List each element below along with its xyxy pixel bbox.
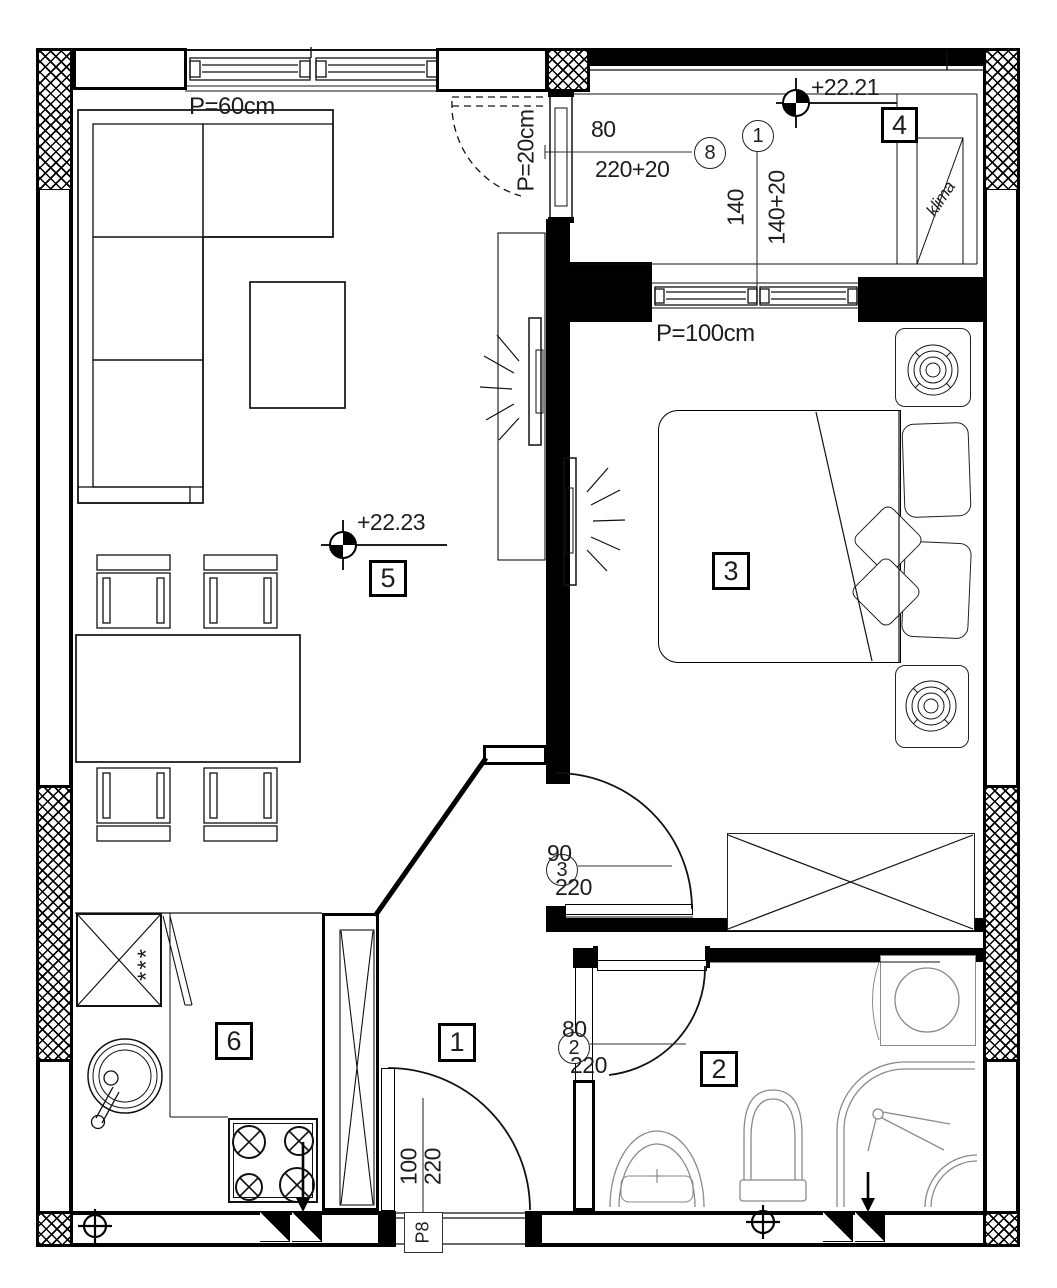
tv-cabinet <box>498 233 545 560</box>
level-label-living: +22.23 <box>357 509 425 536</box>
washer-drum <box>895 968 959 1032</box>
kitchen-sink <box>88 1039 162 1129</box>
wall-diagonal <box>375 758 486 916</box>
coffee-table <box>250 282 345 408</box>
dim-terrace-window-height: 140+20 <box>764 158 791 258</box>
window-living <box>185 47 438 91</box>
bathroom-door-arc <box>609 966 705 1075</box>
lamp <box>906 345 958 731</box>
dim-bathroom-door-width: 80 <box>562 1016 587 1043</box>
shower-head-icon <box>873 1109 883 1119</box>
floor-plan: P=60cm P=100cm P=20cm +22.21 +22.23 klim… <box>0 0 1057 1288</box>
dim-entrance-door-height: 220 <box>420 1117 447 1217</box>
dim-terrace-window-width: 140 <box>723 158 750 258</box>
entrance-panel-box: P8 <box>404 1212 443 1253</box>
room-label-bathroom: 2 <box>700 1051 738 1087</box>
room-label-terrace: 4 <box>881 107 918 143</box>
ref-balcony-door: 8 <box>694 137 726 169</box>
shower <box>837 1062 977 1207</box>
room-label-kitchen: 6 <box>215 1022 253 1060</box>
entrance-panel-label: P8 <box>413 1221 434 1243</box>
level-label-terrace: +22.21 <box>811 74 879 101</box>
sofa <box>78 110 333 503</box>
dining-table <box>76 635 300 762</box>
dim-bedroom-door-width: 90 <box>547 840 572 867</box>
chair <box>204 555 277 628</box>
toilet <box>740 1090 806 1201</box>
window-label-bedroom: P=100cm <box>656 320 755 348</box>
dim-entrance-door-width: 100 <box>396 1117 423 1217</box>
window-label-balcony: P=20cm <box>513 101 540 201</box>
dim-balcony-door-width: 80 <box>591 116 616 143</box>
window-bedroom <box>652 283 858 308</box>
freezer-marks: *** <box>133 924 161 1004</box>
dim-balcony-door-height: 220+20 <box>595 156 669 183</box>
room-label-hallway: 1 <box>438 1023 476 1062</box>
chair <box>97 555 170 628</box>
chair <box>204 768 277 841</box>
dim-bedroom-door-height: 220 <box>555 874 592 901</box>
tv-living <box>529 318 543 445</box>
tv-bedroom <box>564 458 576 585</box>
room-label-living: 5 <box>369 560 407 597</box>
room-label-bedroom: 3 <box>712 552 750 590</box>
chair <box>97 768 170 841</box>
bathroom-sink <box>610 1131 704 1207</box>
ref-terrace-window: 1 <box>742 120 774 152</box>
dim-bathroom-door-height: 220 <box>570 1052 607 1079</box>
window-label-living: P=60cm <box>189 93 275 121</box>
tv-rays <box>480 335 625 571</box>
balcony-door <box>548 91 574 223</box>
section-markers <box>260 1142 885 1242</box>
